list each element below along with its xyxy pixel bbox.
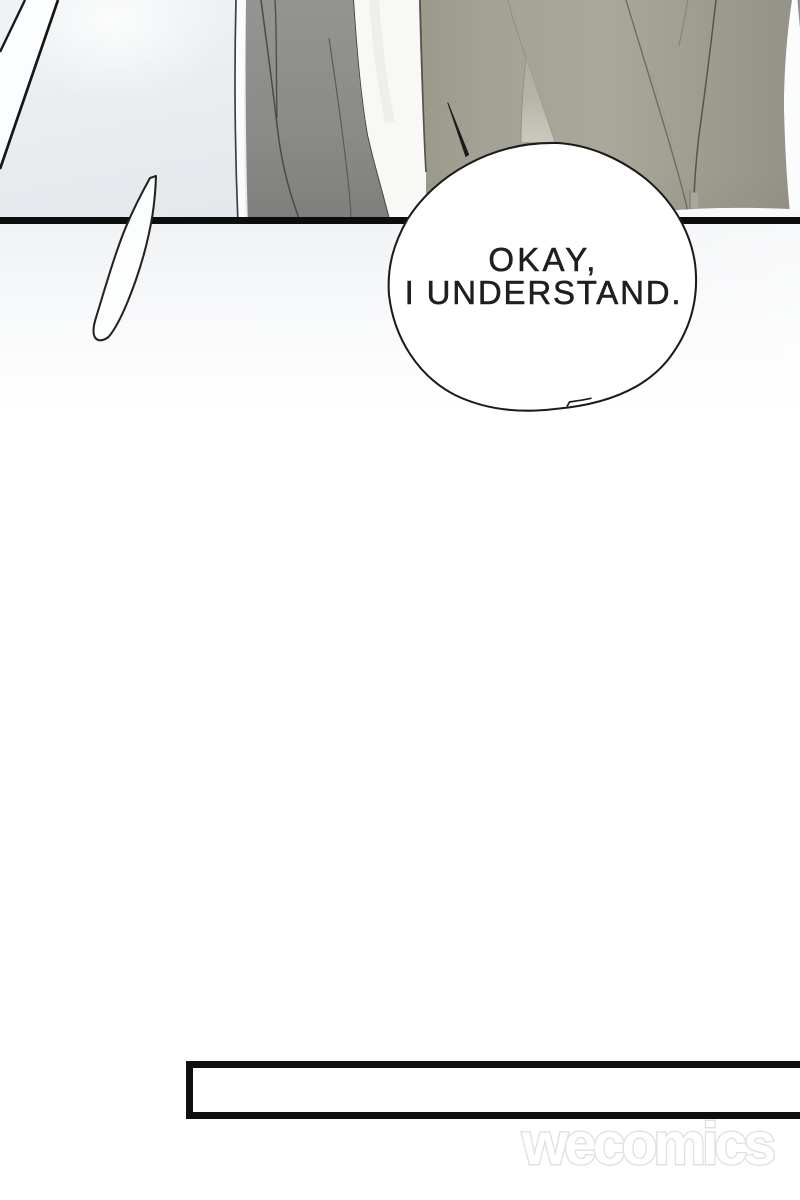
svg-text:wecomics: wecomics (521, 1111, 774, 1177)
